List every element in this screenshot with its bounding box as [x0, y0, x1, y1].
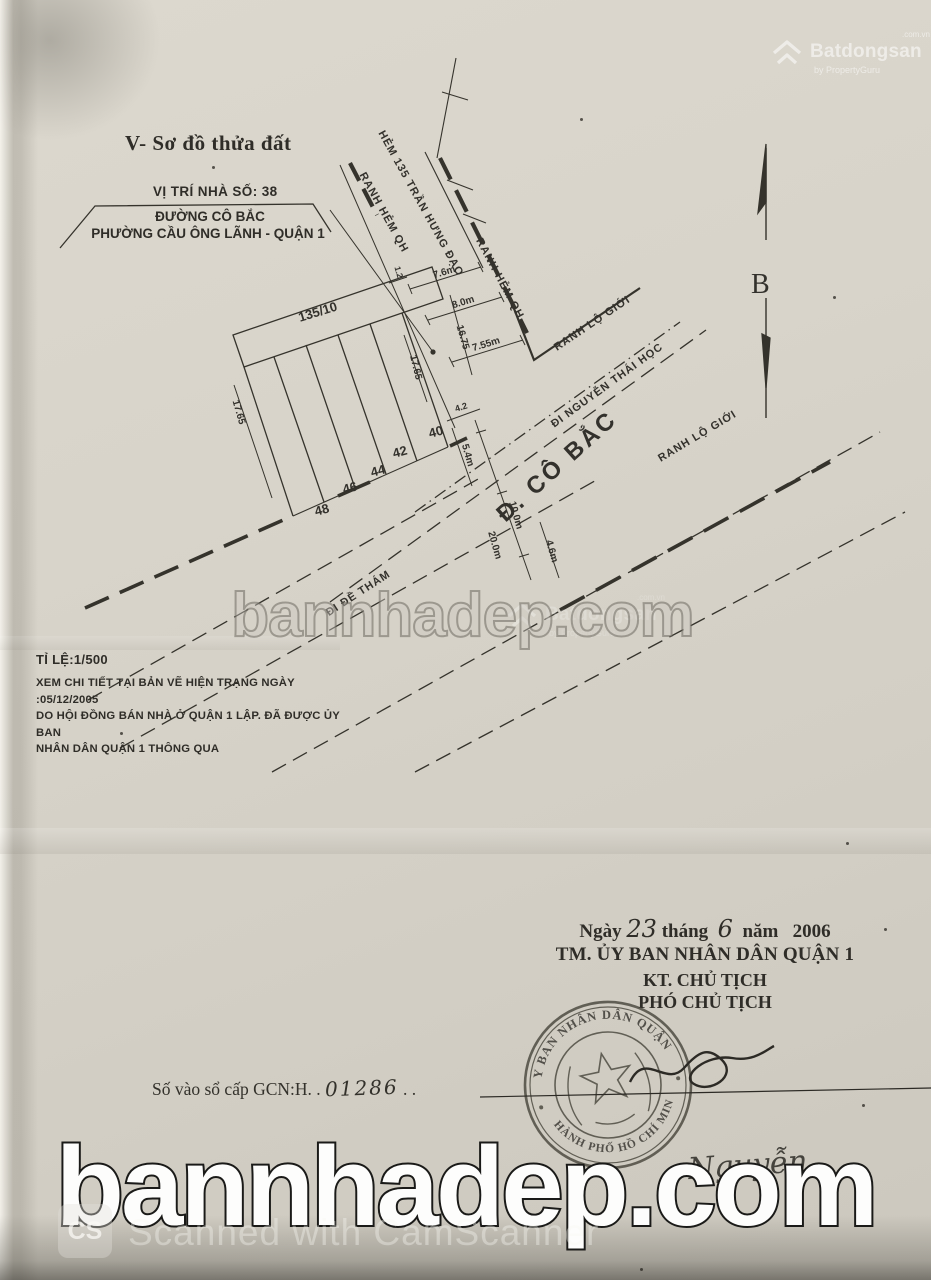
registry-number-handwritten: 01286	[325, 1075, 399, 1102]
batdongsan-name: Batdongsan	[810, 41, 922, 63]
deputy-for-line: KT. CHỦ TỊCH	[505, 970, 905, 991]
handwritten-month: 6	[718, 915, 733, 943]
location-street: ĐƯỜNG CÔ BẮC	[90, 209, 330, 224]
dim-16-75: 16.75	[454, 324, 472, 352]
location-ward-district: PHƯỜNG CẦU ÔNG LÃNH - QUẬN 1	[88, 226, 328, 241]
dim-20-0m: 20.0m	[485, 530, 503, 560]
note-line-1: XEM CHI TIẾT TẠI BẢN VẼ HIỆN TRẠNG NGÀY …	[36, 675, 346, 708]
street-label-hem135: HẺM 135 TRẦN HƯNG ĐẠO	[375, 128, 466, 278]
note-line-3: NHÂN DÂN QUẬN 1 THÔNG QUA	[36, 741, 346, 758]
date-prefix: Ngày	[579, 921, 621, 942]
document-section-title: V- Sơ đồ thửa đất	[125, 131, 292, 156]
note-line-2: DO HỘI ĐỒNG BÁN NHÀ Ở QUẬN 1 LẬP. ĐÃ ĐƯỢ…	[36, 708, 346, 741]
dim-4-6m: 4.6m	[543, 539, 560, 564]
batdongsan-house-icon	[770, 37, 804, 67]
boundary-label-ranh-lo-gioi-bottom: RANH LỘ GIỚI	[656, 407, 739, 464]
compass-label: B	[751, 269, 770, 300]
dim-4-2: 4.2	[454, 401, 469, 414]
parcel-44: 44	[369, 461, 388, 479]
registry-line: Số vào sổ cấp GCN:H. . 01286 . .	[152, 1076, 416, 1100]
boundary-label-ranh-lo-gioi-top: RANH LỘ GIỚI	[551, 293, 632, 354]
parcel-40: 40	[427, 423, 445, 441]
camscanner-icon: CS	[58, 1204, 112, 1258]
parcel-46: 46	[341, 479, 359, 497]
boundary-label-ranh-hem-qh-right: RANH HẺM QH	[473, 236, 527, 321]
parcel-48: 48	[313, 501, 331, 519]
authority-line: TM. ỦY BAN NHÂN DÂN QUẬN 1	[505, 944, 905, 966]
month-label: tháng	[662, 921, 708, 942]
dim-17-65-right: 17.65	[407, 354, 424, 381]
batdongsan-byline: by PropertyGuru	[814, 65, 930, 75]
parcel-42: 42	[391, 443, 409, 461]
handwritten-day: 23	[626, 915, 657, 943]
scale-note-block: TỈ LỆ:1/500 XEM CHI TIẾT TẠI BẢN VẼ HIỆN…	[36, 652, 346, 758]
camscanner-label: Scanned with CamScanner	[128, 1212, 599, 1254]
location-house-number: VỊ TRÍ NHÀ SỐ: 38	[153, 184, 278, 199]
year-value: 2006	[793, 921, 831, 942]
date-line: Ngày 23 tháng 6 năm 2006	[505, 915, 905, 943]
signature-ink	[470, 1020, 931, 1130]
registry-label: Số vào sổ cấp GCN:H. .	[152, 1079, 321, 1099]
year-label: năm	[742, 921, 778, 942]
batdongsan-watermark-top: .com.vn Batdongsan by PropertyGuru	[770, 30, 930, 75]
dim-17-65-left: 17.65	[230, 399, 248, 427]
scanned-land-plot-document: B HẺM 135 TRẦN HƯNG ĐẠO RANH HẺM QH RANH…	[0, 0, 931, 1280]
registry-trailing-dots: . .	[403, 1079, 416, 1099]
scale-label: TỈ LỆ:1/500	[36, 652, 346, 667]
site-watermark-center: bannhadep.com	[190, 580, 735, 651]
parcel-135-10: 135/10	[296, 299, 338, 325]
